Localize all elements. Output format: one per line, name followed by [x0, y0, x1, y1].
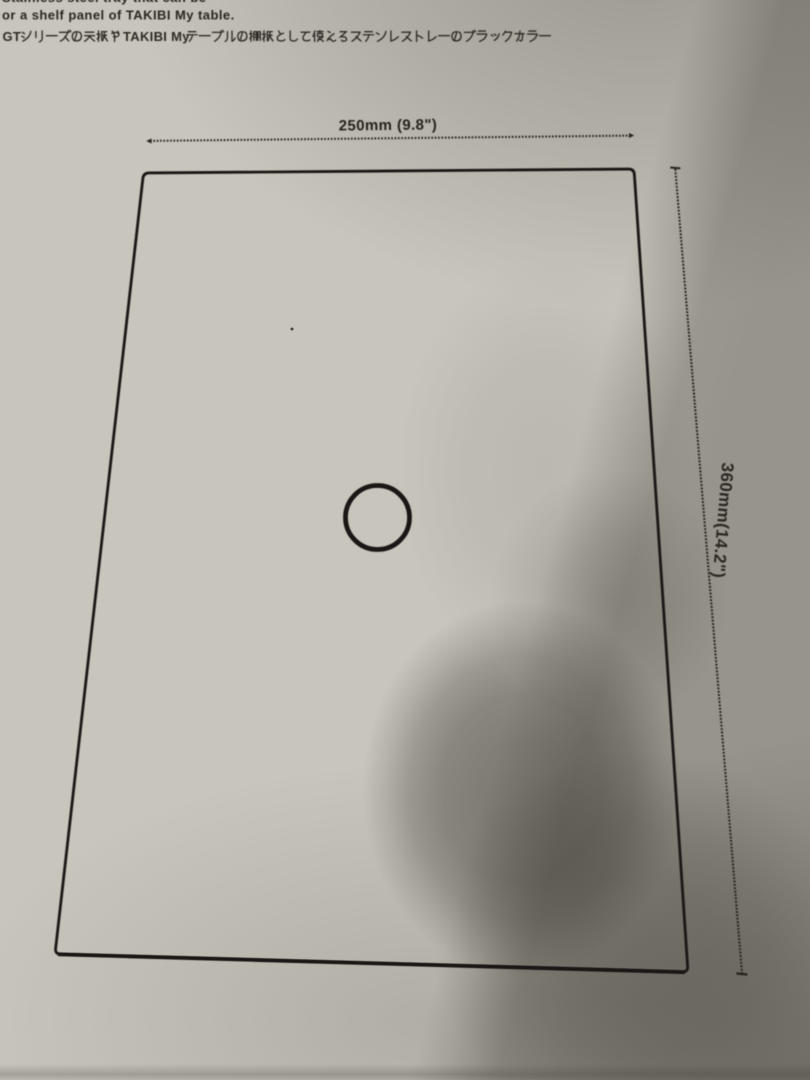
svg-text:or a shelf panel of TAKIBI My: or a shelf panel of TAKIBI My table.: [2, 8, 235, 23]
svg-text:Stainless steel tray that can: Stainless steel tray that can be: [2, 0, 206, 5]
svg-text:TAKIBI My: TAKIBI My: [123, 29, 190, 44]
svg-text:GT: GT: [3, 29, 22, 44]
svg-text:250mm (9.8"): 250mm (9.8"): [339, 116, 438, 134]
